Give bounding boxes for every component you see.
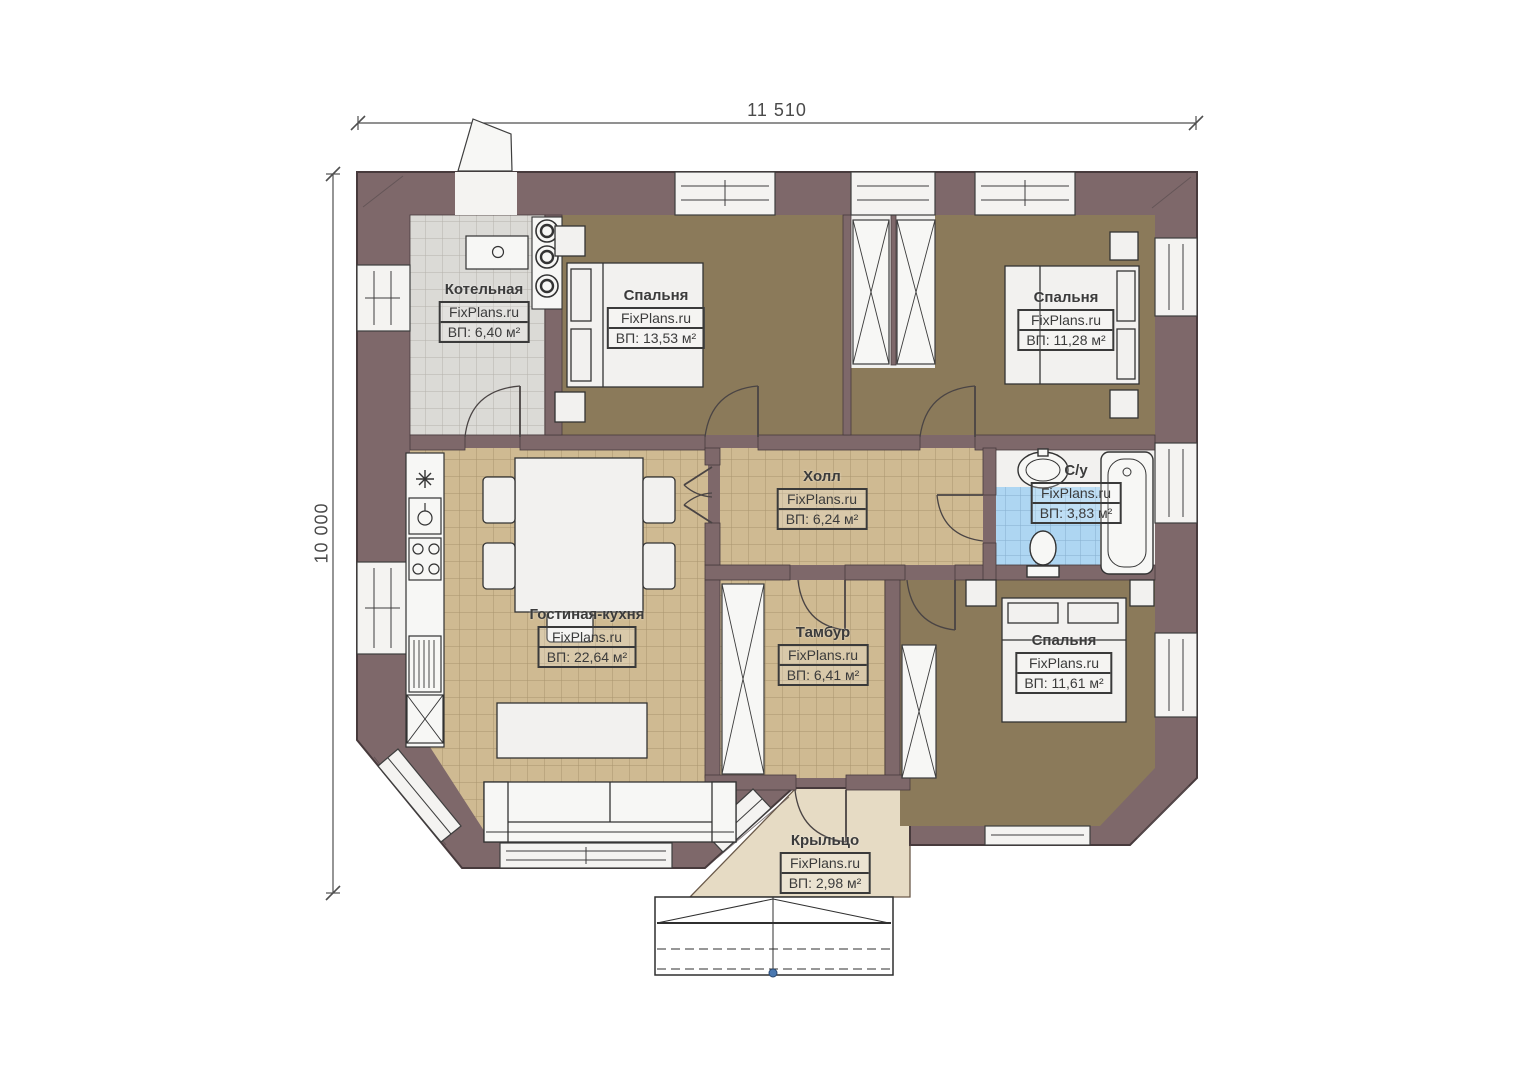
room-name: Спальня	[607, 287, 705, 304]
room-name: Холл	[777, 468, 868, 485]
door-leaf	[458, 119, 512, 171]
watermark: FixPlans.ru	[779, 490, 866, 508]
room-label-bedroom3: Спальня FixPlans.ru ВП: 11,61 м²	[1015, 632, 1112, 694]
room-label-boiler: Котельная FixPlans.ru ВП: 6,40 м²	[439, 281, 530, 343]
floor-plan-page: 11 510 10 000 Котельная FixPlans.ru ВП: …	[0, 0, 1528, 1080]
window-niche-top	[851, 172, 935, 215]
window-bedroom3-bottom	[985, 826, 1090, 845]
watermark: FixPlans.ru	[441, 303, 528, 321]
tv-stand-icon	[497, 703, 647, 758]
window-bedroom3-right	[1155, 633, 1197, 717]
wardrobe-icon	[902, 645, 936, 778]
nightstand-icon	[1130, 580, 1154, 606]
toilet-icon	[1027, 531, 1059, 577]
window-bedroom1-top	[675, 172, 775, 215]
wardrobe-icon	[722, 584, 764, 774]
watermark: FixPlans.ru	[540, 628, 634, 646]
stove-icon	[409, 538, 441, 580]
boiler-counter-sink-icon	[466, 236, 528, 269]
window-bedroom2-top	[975, 172, 1075, 215]
window-bedroom2-right	[1155, 238, 1197, 316]
room-area: ВП: 6,40 м²	[441, 321, 528, 341]
wardrobe-icon	[897, 220, 935, 364]
chair-icon	[643, 477, 675, 523]
radiator-icon	[409, 636, 441, 692]
room-name: Тамбур	[778, 624, 869, 641]
chair-icon	[643, 543, 675, 589]
dimension-height: 10 000	[312, 502, 333, 563]
chair-icon	[483, 477, 515, 523]
room-name: Спальня	[1017, 289, 1114, 306]
watermark: FixPlans.ru	[609, 309, 703, 327]
watermark: FixPlans.ru	[1033, 484, 1120, 502]
nightstand-icon	[555, 226, 585, 256]
steps-node-dot	[769, 969, 777, 977]
boiler-exterior-door	[455, 119, 517, 215]
sofa-icon	[484, 782, 736, 842]
entrance-steps	[655, 897, 893, 977]
room-label-bedroom2: Спальня FixPlans.ru ВП: 11,28 м²	[1017, 289, 1114, 351]
window-kitchen-left	[357, 562, 410, 654]
pillow-icon	[1117, 271, 1135, 321]
room-name: Спальня	[1015, 632, 1112, 649]
room-label-bathroom: С/у FixPlans.ru ВП: 3,83 м²	[1031, 462, 1122, 524]
window-bathroom-right	[1155, 443, 1197, 523]
room-area: ВП: 22,64 м²	[540, 646, 634, 666]
room-area: ВП: 6,41 м²	[780, 664, 867, 684]
fridge-icon	[407, 695, 443, 743]
room-area: ВП: 2,98 м²	[782, 872, 869, 892]
window-living-bottom	[500, 843, 672, 868]
room-label-porch: Крыльцо FixPlans.ru ВП: 2,98 м²	[780, 832, 871, 894]
nightstand-icon	[966, 580, 996, 606]
pillow-icon	[1117, 329, 1135, 379]
kitchen-counter	[406, 453, 444, 747]
watermark: FixPlans.ru	[1019, 311, 1112, 329]
pillow-icon	[1068, 603, 1118, 623]
room-label-bedroom1: Спальня FixPlans.ru ВП: 13,53 м²	[607, 287, 705, 349]
room-area: ВП: 3,83 м²	[1033, 502, 1120, 522]
wardrobe-icon	[853, 220, 889, 364]
room-name: Крыльцо	[780, 832, 871, 849]
room-name: Гостиная-кухня	[530, 606, 645, 623]
room-area: ВП: 11,61 м²	[1017, 672, 1110, 692]
room-area: ВП: 6,24 м²	[779, 508, 866, 528]
floor-plan-canvas	[0, 0, 1528, 1080]
pillow-icon	[1008, 603, 1058, 623]
room-name: Котельная	[439, 281, 530, 298]
watermark: FixPlans.ru	[1017, 654, 1110, 672]
room-label-tambour: Тамбур FixPlans.ru ВП: 6,41 м²	[778, 624, 869, 686]
watermark: FixPlans.ru	[780, 646, 867, 664]
window-boiler-left	[357, 265, 410, 331]
nightstand-icon	[1110, 390, 1138, 418]
watermark: FixPlans.ru	[782, 854, 869, 872]
nightstand-icon	[1110, 232, 1138, 260]
kitchen-sink-icon	[409, 498, 441, 534]
room-name: С/у	[1031, 462, 1122, 479]
chair-icon	[483, 543, 515, 589]
pillow-icon	[571, 329, 591, 381]
pillow-icon	[571, 269, 591, 321]
nightstand-icon	[555, 392, 585, 422]
room-area: ВП: 13,53 м²	[609, 327, 703, 347]
room-label-hall: Холл FixPlans.ru ВП: 6,24 м²	[777, 468, 868, 530]
dimension-width: 11 510	[747, 100, 807, 121]
room-label-living-kitchen: Гостиная-кухня FixPlans.ru ВП: 22,64 м²	[530, 606, 645, 668]
room-area: ВП: 11,28 м²	[1019, 329, 1112, 349]
